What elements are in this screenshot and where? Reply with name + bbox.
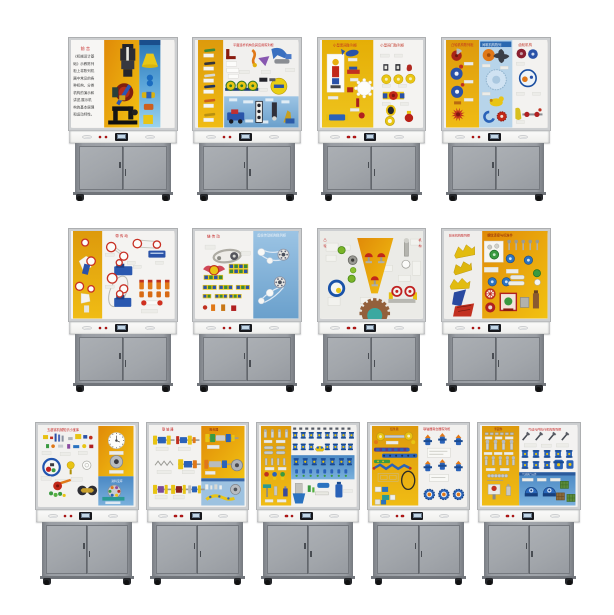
svg-text:柜上将陈列机: 柜上将陈列机 bbox=[73, 68, 94, 73]
svg-text:平面连杆机构及其应用陈列柜: 平面连杆机构及其应用陈列柜 bbox=[233, 42, 273, 47]
svg-text:齿轮传动机构陈列柜: 齿轮传动机构陈列柜 bbox=[258, 233, 288, 238]
svg-text:构的基本原理: 构的基本原理 bbox=[73, 104, 94, 109]
svg-text:《机械设计基: 《机械设计基 bbox=[73, 54, 94, 59]
svg-text:前 言: 前 言 bbox=[81, 45, 91, 52]
svg-text:五超省机械知识小宝库: 五超省机械知识小宝库 bbox=[47, 427, 80, 432]
svg-text:气动执行元件: 气动执行元件 bbox=[523, 472, 538, 476]
svg-text:凸: 凸 bbox=[323, 238, 326, 242]
svg-text:和运动特性。: 和运动特性。 bbox=[73, 112, 94, 117]
svg-text:间歇机构陈列: 间歇机构陈列 bbox=[482, 42, 501, 47]
svg-text:机构的演示和: 机构的演示和 bbox=[73, 90, 94, 95]
svg-text:构: 构 bbox=[418, 243, 421, 248]
svg-text:资料宝库: 资料宝库 bbox=[111, 479, 122, 483]
svg-text:小型泵阀陈列柜: 小型泵阀陈列柜 bbox=[333, 43, 357, 48]
svg-text:础》示教陈列: 础》示教陈列 bbox=[73, 61, 94, 66]
svg-text:器中常见的各: 器中常见的各 bbox=[73, 75, 94, 80]
svg-text:齿轮机构: 齿轮机构 bbox=[518, 42, 532, 47]
svg-text:链条篇: 链条篇 bbox=[390, 427, 399, 431]
svg-text:小型阀门陈列柜: 小型阀门陈列柜 bbox=[380, 43, 404, 48]
svg-text:种机构、分类: 种机构、分类 bbox=[73, 83, 94, 88]
svg-text:紧固件: 紧固件 bbox=[494, 427, 503, 431]
svg-text:讲述,展示机: 讲述,展示机 bbox=[73, 97, 92, 102]
svg-text:机: 机 bbox=[418, 237, 421, 242]
svg-text:螺纹连接与标准件: 螺纹连接与标准件 bbox=[487, 233, 513, 238]
svg-text:带 传 动: 带 传 动 bbox=[115, 233, 128, 238]
svg-text:气动元件执行机构陈列柜: 气动元件执行机构陈列柜 bbox=[529, 427, 562, 432]
svg-text:链 传 动: 链 传 动 bbox=[207, 234, 220, 239]
svg-text:联轴器离合器陈列柜: 联轴器离合器陈列柜 bbox=[423, 426, 450, 431]
svg-text:凸轮机构陈列柜: 凸轮机构陈列柜 bbox=[451, 42, 474, 47]
svg-text:联 轴 器: 联 轴 器 bbox=[162, 427, 174, 432]
svg-text:离合器: 离合器 bbox=[209, 427, 218, 432]
svg-text:轮系机构陈列柜: 轮系机构陈列柜 bbox=[449, 233, 470, 238]
svg-text:轮: 轮 bbox=[323, 243, 326, 248]
